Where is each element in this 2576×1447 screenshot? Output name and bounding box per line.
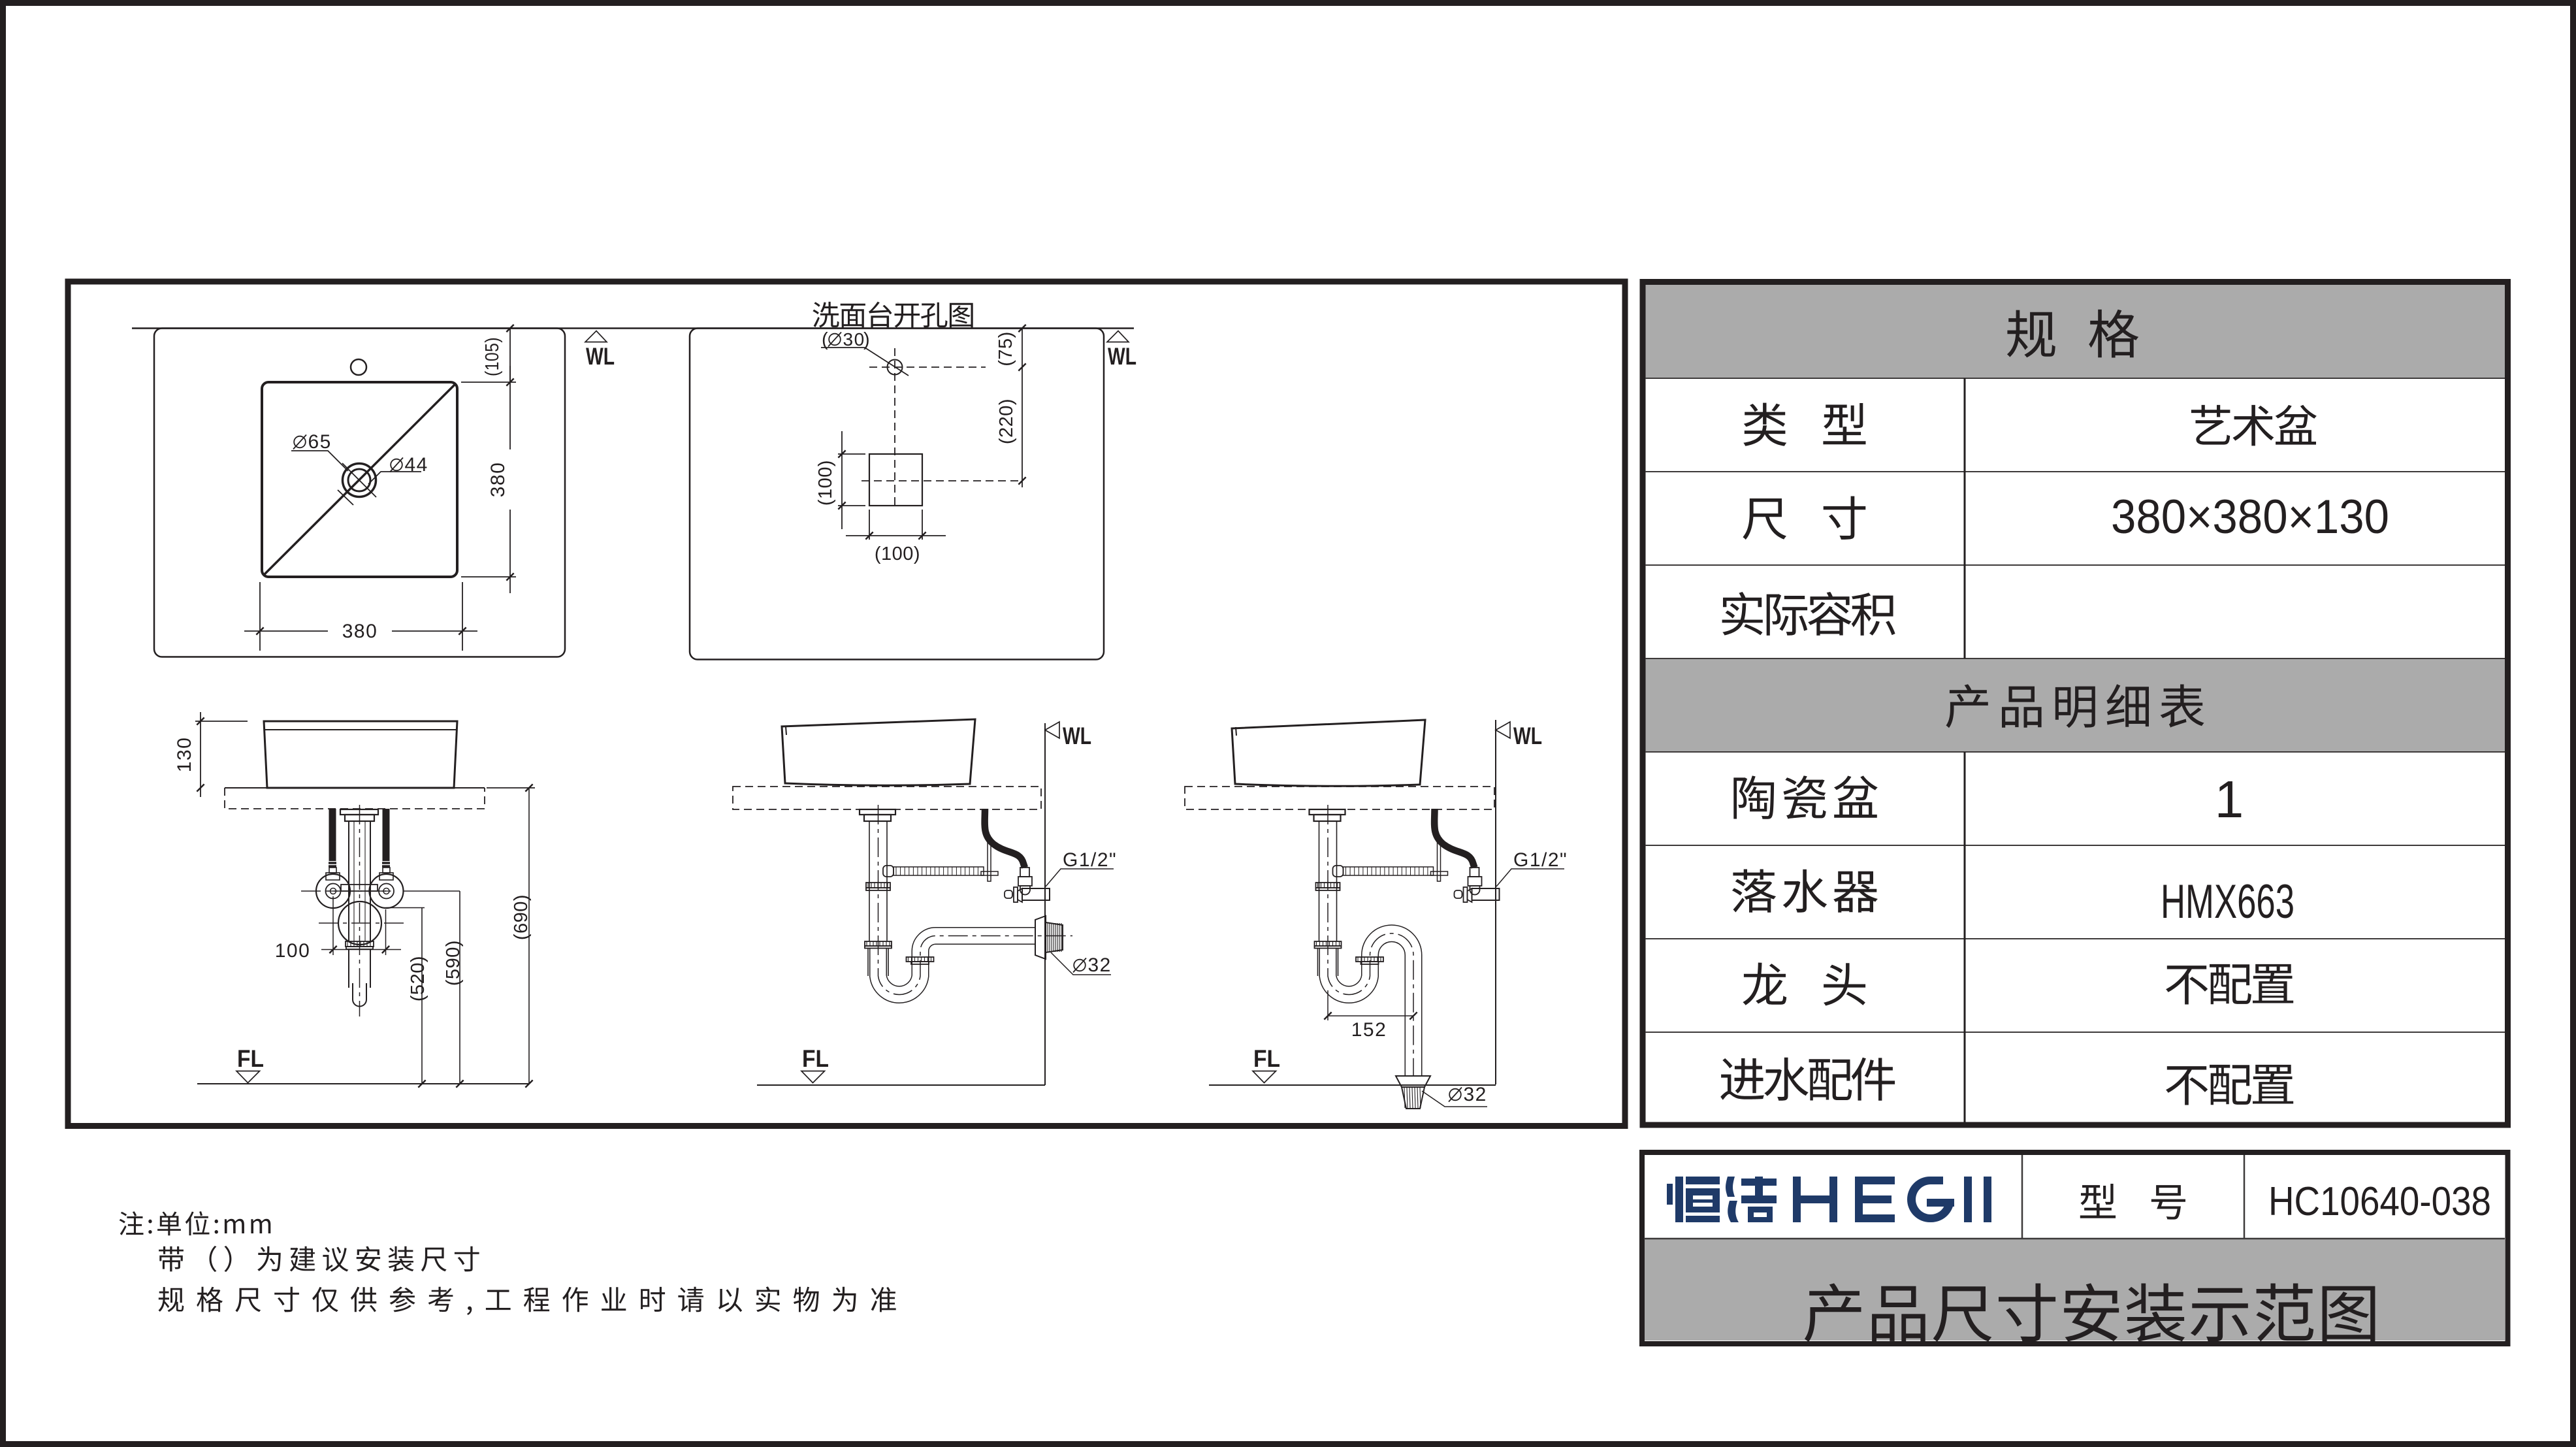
svg-text:(520): (520) <box>408 956 428 1001</box>
svg-text:(100): (100) <box>815 460 836 506</box>
svg-text:HMX663: HMX663 <box>2161 875 2294 928</box>
svg-text:380: 380 <box>487 462 509 498</box>
svg-text:WL: WL <box>1063 723 1091 749</box>
svg-text:(590): (590) <box>443 940 464 986</box>
svg-text:G1/2": G1/2" <box>1063 849 1117 871</box>
svg-text:65: 65 <box>308 431 332 453</box>
svg-text:WL: WL <box>1108 343 1136 370</box>
svg-text:HC10640-038: HC10640-038 <box>2268 1179 2491 1224</box>
svg-text:FL: FL <box>1253 1045 1280 1072</box>
svg-text:44: 44 <box>405 454 428 476</box>
svg-text:G1/2": G1/2" <box>1513 849 1568 871</box>
svg-text:100: 100 <box>275 940 311 962</box>
svg-text:WL: WL <box>1513 723 1542 749</box>
svg-text:380×380×130: 380×380×130 <box>2111 491 2389 544</box>
svg-text:(105): (105) <box>482 337 503 376</box>
svg-text:(75): (75) <box>995 331 1016 366</box>
svg-text:30: 30 <box>843 329 865 350</box>
svg-text:(100): (100) <box>875 544 920 564</box>
svg-text:FL: FL <box>237 1045 264 1072</box>
svg-text:(690): (690) <box>511 894 532 940</box>
svg-text:WL: WL <box>586 343 615 370</box>
svg-text:32: 32 <box>1088 954 1112 976</box>
svg-text:32: 32 <box>1464 1084 1487 1105</box>
svg-text:(220): (220) <box>996 398 1017 444</box>
svg-text:152: 152 <box>1351 1019 1387 1041</box>
svg-text:380: 380 <box>342 621 378 642</box>
svg-text:FL: FL <box>802 1045 829 1072</box>
svg-text:130: 130 <box>174 737 195 773</box>
svg-text:1: 1 <box>2215 770 2244 828</box>
